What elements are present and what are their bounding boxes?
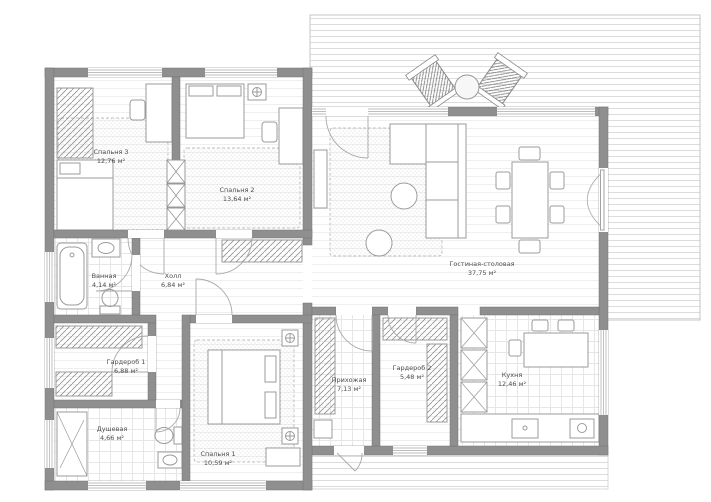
window xyxy=(497,107,595,116)
washbasin-icon xyxy=(92,239,120,257)
floor-corridor xyxy=(156,315,182,400)
room-label-hall: Холл 6,84 м² xyxy=(161,272,185,290)
stool-icon xyxy=(314,420,332,438)
room-area: 5,48 м² xyxy=(393,373,432,382)
wardrobe-icon xyxy=(222,240,302,262)
entry-porch-deck xyxy=(312,455,608,489)
room-area: 7,13 м² xyxy=(332,385,367,394)
room-label-shower: Душевая 4,66 м² xyxy=(97,425,128,443)
wardrobe-icon xyxy=(57,88,93,158)
tv-unit-icon xyxy=(314,150,327,208)
kitchen-tall-units-icon xyxy=(461,318,487,412)
window xyxy=(45,420,54,468)
shower-tray-icon xyxy=(57,412,87,476)
room-name: Холл xyxy=(161,272,185,281)
built-in-cabinet-icon xyxy=(167,160,185,230)
room-label-wardrobe-2: Гардероб 2 5,48 м² xyxy=(393,364,432,382)
room-name: Прихожая xyxy=(332,376,367,385)
wardrobe-icon xyxy=(56,372,112,396)
room-label-bedroom-1: Спальня 1 10,59 м² xyxy=(200,450,235,468)
window xyxy=(88,481,146,490)
wardrobe-icon xyxy=(56,326,142,348)
wardrobe-icon xyxy=(427,344,447,422)
room-name: Гардероб 2 xyxy=(393,364,432,373)
nightstand-lamp-icon xyxy=(282,330,298,346)
nightstand-lamp-icon xyxy=(248,84,266,100)
room-label-entry: Прихожая 7,13 м² xyxy=(332,376,367,394)
window xyxy=(180,481,266,490)
room-area: 4,66 м² xyxy=(97,434,128,443)
wardrobe-icon xyxy=(383,318,447,340)
floor-plan-canvas: Спальня 3 12,76 м² Спальня 2 13,64 м² Го… xyxy=(0,0,711,502)
room-label-living: Гостиная-столовая 37,75 м² xyxy=(449,260,514,278)
room-name: Спальня 2 xyxy=(219,186,254,195)
coffee-table-icon xyxy=(391,183,417,209)
bench-icon xyxy=(266,448,300,466)
room-name: Ванная xyxy=(92,272,117,281)
room-area: 13,64 м² xyxy=(219,195,254,204)
room-label-kitchen: Кухня 12,46 м² xyxy=(498,371,526,389)
room-label-wardrobe-1: Гардероб 1 6,88 м² xyxy=(107,358,146,376)
window xyxy=(88,68,162,77)
room-area: 4,14 м² xyxy=(92,281,117,290)
wardrobe-icon xyxy=(315,318,335,414)
window xyxy=(205,68,277,77)
room-name: Спальня 1 xyxy=(200,450,235,459)
pouf-icon xyxy=(366,230,392,256)
room-area: 6,88 м² xyxy=(107,367,146,376)
room-label-bathroom: Ванная 4,14 м² xyxy=(92,272,117,290)
room-area: 12,76 м² xyxy=(93,157,128,166)
window xyxy=(393,446,427,455)
room-name: Гостиная-столовая xyxy=(449,260,514,269)
room-area: 37,75 м² xyxy=(449,269,514,278)
room-area: 10,59 м² xyxy=(200,459,235,468)
room-name: Душевая xyxy=(97,425,128,434)
bathtub-icon xyxy=(57,243,87,309)
room-area: 6,84 м² xyxy=(161,281,185,290)
window xyxy=(599,330,608,415)
room-label-bedroom-3: Спальня 3 12,76 м² xyxy=(93,148,128,166)
room-name: Гардероб 1 xyxy=(107,358,146,367)
window xyxy=(45,338,54,388)
room-name: Спальня 3 xyxy=(93,148,128,157)
room-name: Кухня xyxy=(498,371,526,380)
bed-icon xyxy=(186,84,244,138)
window xyxy=(45,252,54,302)
room-label-bedroom-2: Спальня 2 13,64 м² xyxy=(219,186,254,204)
bed-icon xyxy=(208,350,280,424)
room-area: 12,46 м² xyxy=(498,380,526,389)
nightstand-lamp-icon xyxy=(282,428,298,444)
terrace-table-icon xyxy=(455,75,479,99)
bed-icon xyxy=(57,160,113,230)
kitchen-counter-icon xyxy=(461,414,599,442)
washbasin-icon xyxy=(158,452,182,468)
